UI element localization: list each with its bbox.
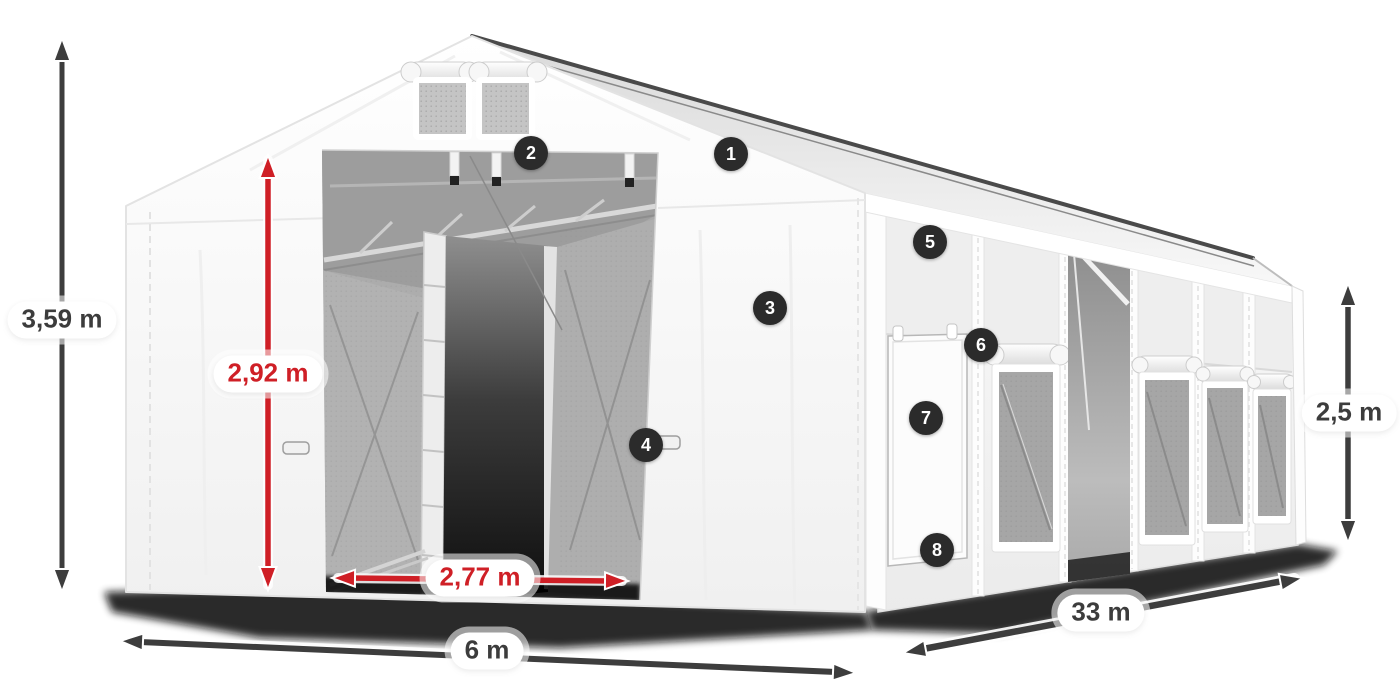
dimension-label-total-height: 3,59 m bbox=[8, 302, 117, 339]
side-mesh-window-2 bbox=[1132, 356, 1202, 545]
tent-illustration bbox=[0, 0, 1400, 700]
dimension-label-total-width: 6 m bbox=[451, 633, 524, 670]
callout-1[interactable]: 1 bbox=[714, 137, 748, 171]
callout-3[interactable]: 3 bbox=[753, 291, 787, 325]
callout-7[interactable]: 7 bbox=[909, 401, 943, 435]
side-door-opening bbox=[1068, 236, 1136, 582]
callout-2[interactable]: 2 bbox=[514, 136, 548, 170]
callout-5[interactable]: 5 bbox=[913, 225, 947, 259]
side-mesh-window-4 bbox=[1248, 374, 1297, 524]
callout-8[interactable]: 8 bbox=[920, 533, 954, 567]
far-door-opening bbox=[443, 236, 548, 602]
personnel-door-hook-left bbox=[893, 326, 903, 341]
tent-dimension-diagram: 3,59 m 2,92 m 2,77 m 6 m 33 m 2,5 m 1 2 … bbox=[0, 0, 1400, 700]
left-door-handle bbox=[283, 442, 309, 454]
dimension-label-entrance-height: 2,92 m bbox=[214, 356, 323, 393]
personnel-door-panel bbox=[888, 334, 967, 566]
side-personnel-door bbox=[888, 324, 967, 566]
window-roll-cap bbox=[1050, 345, 1070, 365]
side-mesh-window-3 bbox=[1196, 366, 1254, 532]
front-entrance-interior bbox=[315, 145, 665, 610]
side-mesh-window-1 bbox=[984, 344, 1070, 552]
dimension-label-side-height: 2,5 m bbox=[1302, 395, 1397, 432]
callout-4[interactable]: 4 bbox=[629, 428, 663, 462]
personnel-door-hook-right bbox=[947, 324, 957, 339]
dimension-label-total-length: 33 m bbox=[1057, 595, 1144, 632]
dimension-label-entrance-width: 2,77 m bbox=[426, 560, 535, 597]
callout-6[interactable]: 6 bbox=[964, 328, 998, 362]
